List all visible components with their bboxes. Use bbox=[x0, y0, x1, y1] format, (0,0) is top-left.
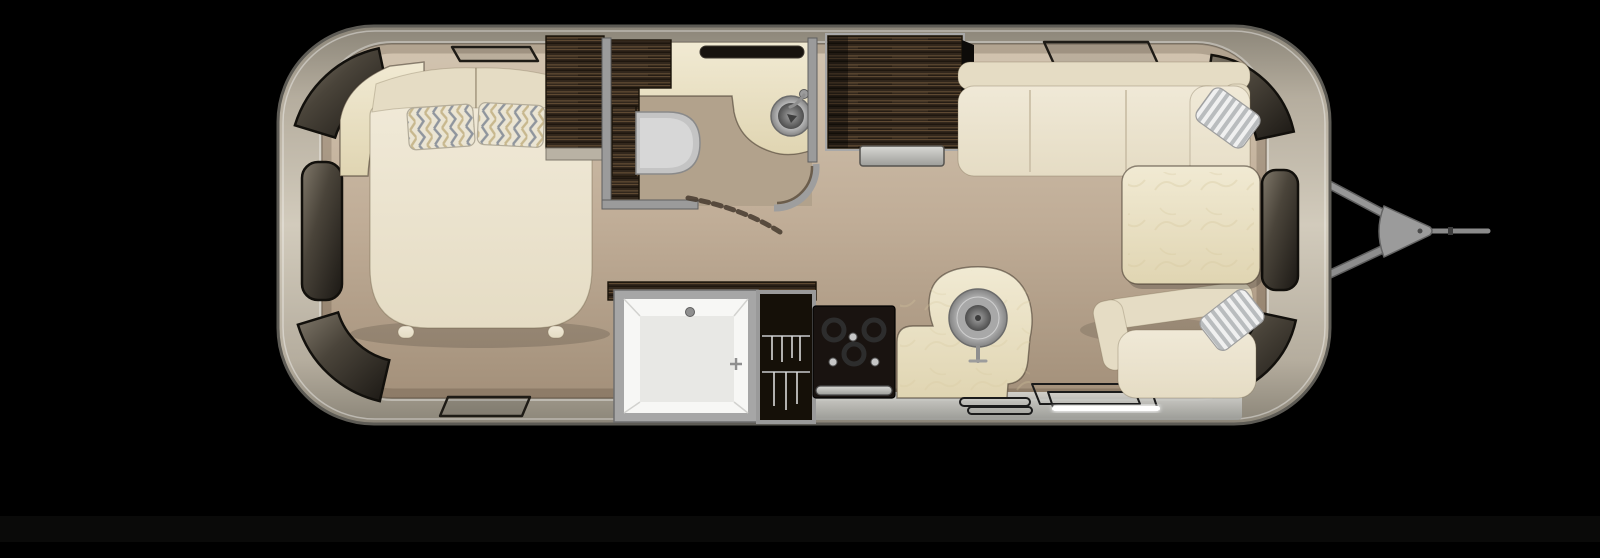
floorplan-canvas bbox=[0, 0, 1600, 558]
toilet-seat bbox=[640, 118, 693, 168]
fridge-step-ledge bbox=[860, 146, 944, 166]
refrigerator bbox=[826, 34, 974, 166]
ground-shadow bbox=[0, 516, 1600, 542]
sofa-seat bbox=[958, 86, 1224, 176]
kitchen-sink-drain bbox=[975, 315, 981, 321]
hitch bbox=[1326, 183, 1488, 276]
wardrobe bbox=[546, 36, 604, 148]
bath-upper-cabinet bbox=[611, 40, 671, 88]
bathroom bbox=[602, 38, 817, 232]
roof-vent-bedroom bbox=[452, 47, 538, 61]
range-oven bbox=[813, 306, 895, 398]
range-knob-2 bbox=[829, 358, 837, 366]
window-rear-center bbox=[1262, 170, 1298, 290]
roof-vent-bottom bbox=[440, 397, 530, 416]
range-knob-3 bbox=[871, 358, 879, 366]
bathroom-wall-bottom bbox=[602, 200, 698, 209]
led-strip bbox=[1052, 406, 1160, 411]
range-knob-1 bbox=[849, 333, 857, 341]
toilet-tank bbox=[612, 106, 636, 176]
window-front-center bbox=[302, 162, 342, 300]
coupler bbox=[1379, 206, 1432, 257]
coupler-pin bbox=[1418, 229, 1423, 234]
shower-pan bbox=[640, 316, 734, 402]
bathroom-window-slot bbox=[700, 46, 804, 58]
chevron-pillow-left bbox=[407, 104, 476, 151]
bathroom-wall-left bbox=[602, 38, 611, 208]
shower-head bbox=[686, 308, 695, 317]
bed-foot-left bbox=[398, 326, 414, 338]
table-veins bbox=[1128, 172, 1254, 278]
floorplan-svg bbox=[0, 0, 1600, 558]
bedroom bbox=[340, 36, 610, 348]
chevron-pillow-right bbox=[477, 102, 545, 147]
oven-handle bbox=[816, 386, 892, 395]
fridge-body bbox=[828, 36, 962, 148]
bathroom-wall-right bbox=[808, 38, 817, 162]
bed-foot-right bbox=[548, 326, 564, 338]
tow-bar-notch bbox=[1448, 227, 1453, 235]
wardrobe-shelf bbox=[546, 148, 604, 160]
roof-vent-dinette bbox=[1044, 42, 1158, 64]
fridge-left-stile bbox=[828, 36, 848, 148]
